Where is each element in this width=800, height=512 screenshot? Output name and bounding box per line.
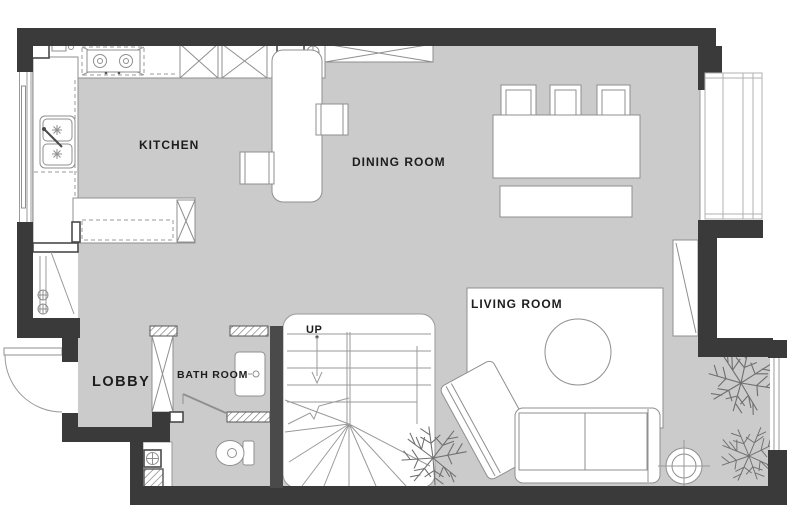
floor-plan-drawing: KITCHEN DINING ROOM LIVING ROOM LOBBY BA… bbox=[0, 0, 800, 512]
stair-wall bbox=[270, 326, 283, 488]
kitchen-sink-icon bbox=[40, 116, 75, 168]
stairs bbox=[283, 314, 435, 488]
wardrobe bbox=[152, 336, 173, 412]
up-label: UP bbox=[306, 324, 322, 336]
left-window bbox=[17, 72, 30, 222]
lobby-label: LOBBY bbox=[92, 374, 150, 390]
right-window bbox=[770, 358, 784, 450]
kitchen-label: KITCHEN bbox=[139, 138, 199, 152]
tall-cabinet bbox=[177, 200, 195, 242]
shower-partition bbox=[227, 412, 270, 422]
partition-wall bbox=[230, 326, 268, 336]
gas-stove-icon bbox=[82, 47, 144, 75]
toilet-icon bbox=[216, 441, 254, 466]
floor-drain-icon bbox=[143, 442, 172, 490]
floor-plan: KITCHEN DINING ROOM LIVING ROOM LOBBY BA… bbox=[0, 0, 800, 512]
open-door bbox=[673, 240, 698, 336]
bar-chair bbox=[240, 152, 274, 184]
wall-end-cap bbox=[72, 222, 80, 242]
bar-chair bbox=[316, 104, 348, 135]
dining-bench bbox=[500, 186, 632, 217]
bath-room-label: BATH ROOM bbox=[177, 369, 248, 381]
dining-room-label: DINING ROOM bbox=[352, 155, 446, 169]
partition-wall bbox=[150, 326, 177, 336]
coffee-table bbox=[545, 319, 611, 385]
sofa bbox=[515, 408, 660, 483]
balcony-window bbox=[705, 73, 762, 219]
long-wall-cabinet bbox=[325, 44, 433, 62]
entry-door bbox=[4, 348, 62, 412]
wall-cabinet bbox=[180, 44, 267, 78]
dining-area bbox=[493, 85, 640, 217]
dining-table bbox=[493, 115, 640, 178]
bar-table bbox=[272, 50, 322, 202]
radiator-icon bbox=[33, 243, 78, 318]
living-room-label: LIVING ROOM bbox=[471, 297, 563, 311]
